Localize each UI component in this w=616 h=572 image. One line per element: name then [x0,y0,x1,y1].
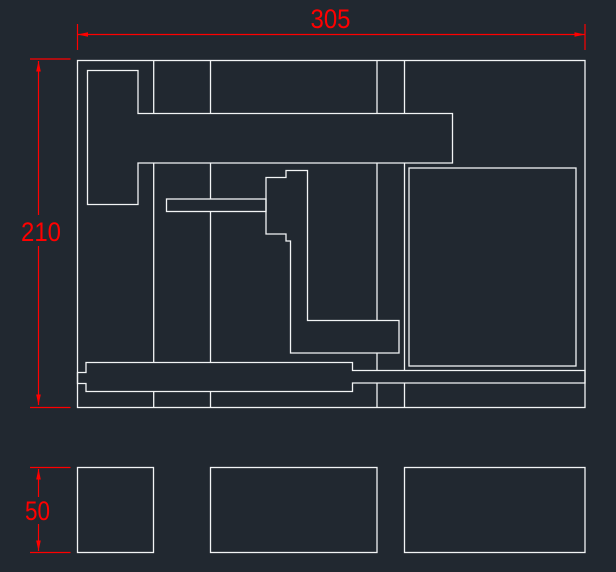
dim-width-305: 305 [78,4,586,50]
cad-canvas[interactable]: 30521050 [0,0,616,572]
dim-label-210: 210 [21,217,61,247]
step-cutout [266,171,399,354]
front-view-block-left [78,468,154,553]
square-pocket [409,168,576,366]
model-space: 30521050 [0,0,616,572]
dimension-layer: 30521050 [21,4,585,553]
dim-label-305: 305 [311,4,351,34]
bottom-rail [78,363,586,392]
spear-slot [167,199,267,212]
dim-height-50: 50 [25,468,71,553]
dim-label-50: 50 [25,496,50,526]
dim-arrowhead [78,32,89,37]
tee-cutout [88,71,453,205]
front-view-block-middle [211,468,378,553]
dim-arrowhead [36,541,41,552]
front-view-block-right [405,468,586,553]
dim-arrowhead [36,469,41,480]
dim-arrowhead [36,61,41,72]
dim-arrowhead [36,395,41,406]
geometry-layer [78,61,586,553]
dim-arrowhead [575,32,586,37]
dim-height-210: 210 [21,59,71,408]
